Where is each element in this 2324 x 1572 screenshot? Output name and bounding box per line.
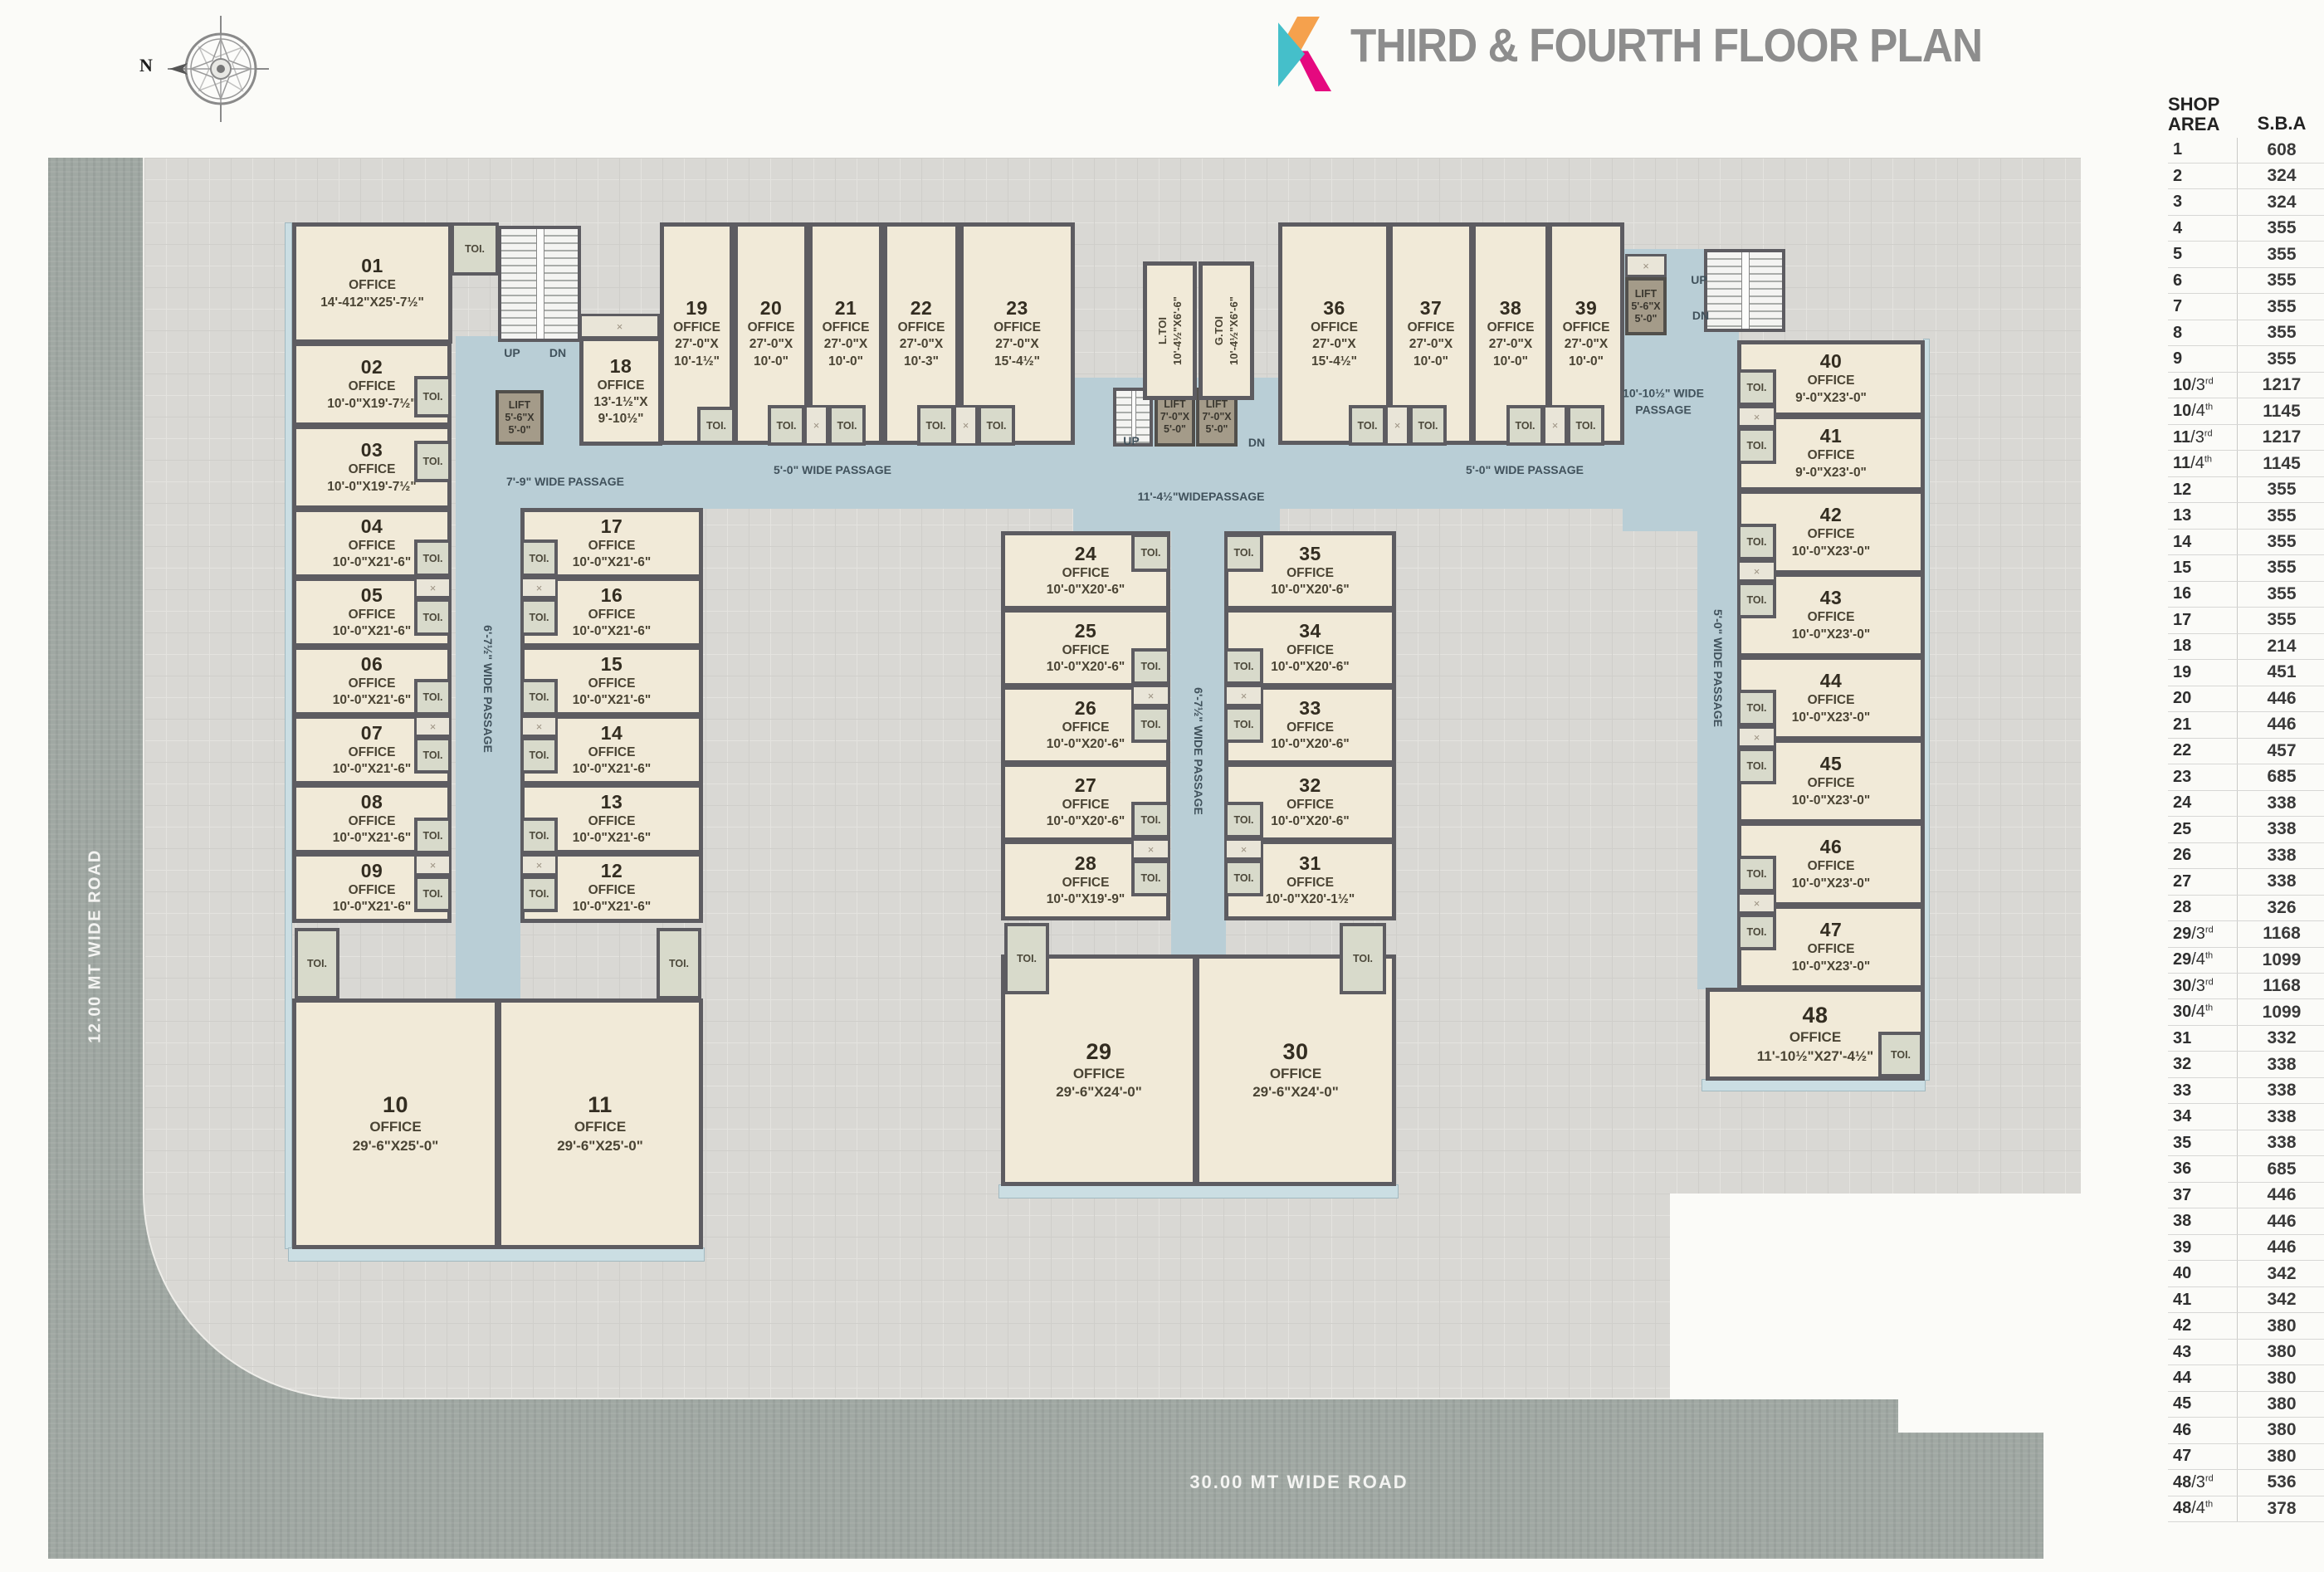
plinth-edge (1701, 1079, 1926, 1091)
toilet-room: TOI. (1131, 706, 1170, 743)
duct-shaft: × (1131, 838, 1170, 860)
table-row: 11/4th1145 (2168, 451, 2324, 476)
toilet-room: TOI. (414, 876, 452, 912)
dn-label: DN (1248, 436, 1265, 449)
toilet-room: TOI. (520, 737, 558, 774)
toilet-room: TOI. (1737, 748, 1776, 784)
table-header-sba: S.B.A (2238, 113, 2324, 134)
toilet-room: TOI. (1224, 648, 1263, 685)
table-row: 3324 (2168, 189, 2324, 215)
passage (1171, 917, 1226, 956)
toilet-room: TOI. (1737, 856, 1776, 892)
duct-shaft: × (954, 405, 978, 446)
toilet-room: TOI. (1409, 405, 1447, 446)
duct-shaft: × (1543, 405, 1567, 446)
table-row: 47380 (2168, 1444, 2324, 1470)
toilet-room: TOI. (1737, 582, 1776, 618)
passage (1278, 444, 1627, 509)
toilet-room: TOI. (1131, 648, 1170, 685)
north-label: N (139, 55, 153, 76)
toilet-room: TOI. (1004, 923, 1049, 994)
duct-shaft: × (520, 715, 558, 737)
table-row: 42380 (2168, 1313, 2324, 1339)
table-header-area: SHOP AREA (2168, 95, 2238, 134)
table-row: 13355 (2168, 503, 2324, 529)
duct-shaft: × (1625, 254, 1667, 277)
toilet-room: TOI. (1224, 860, 1263, 896)
table-row: 8355 (2168, 320, 2324, 346)
table-row: 34338 (2168, 1104, 2324, 1130)
toilet-room: TOI. (1737, 690, 1776, 726)
table-row: 9355 (2168, 346, 2324, 372)
toilet-room: TOI. (1131, 802, 1170, 838)
toilet-room: TOI. (828, 405, 866, 446)
toilet-room: L.TOI10'-4½"X6'-6" (1143, 261, 1197, 400)
page-title: THIRD & FOURTH FLOOR PLAN (1350, 18, 1982, 73)
toilet-room: TOI. (657, 928, 701, 999)
table-row: 30/4th1099 (2168, 999, 2324, 1025)
toilet-room: TOI. (1224, 534, 1263, 572)
duct-shaft: × (414, 577, 452, 598)
toilet-room: TOI. (1737, 427, 1776, 464)
table-row: 7355 (2168, 294, 2324, 320)
shop-area-table: SHOP AREA S.B.A 160823243324435553556355… (2168, 95, 2324, 1522)
passage-label: 5'-0" WIDE PASSAGE (774, 463, 891, 476)
table-row: 5355 (2168, 242, 2324, 267)
duct-shaft: × (520, 854, 558, 876)
toilet-room: TOI. (1737, 524, 1776, 560)
duct-shaft: × (1224, 838, 1263, 860)
shop-table-rows: 16082324332443555355635573558355935510/3… (2168, 138, 2324, 1523)
toilet-room: TOI. (917, 405, 954, 446)
table-row: 6355 (2168, 268, 2324, 294)
toilet-room: TOI. (1224, 706, 1263, 743)
up-label: UP (1691, 273, 1706, 286)
toilet-room: TOI. (1878, 1032, 1923, 1077)
lift-room: LIFT5'-6"X5'-0" (1625, 277, 1667, 335)
toilet-room: TOI. (520, 818, 558, 854)
table-row: 10/3rd1217 (2168, 373, 2324, 398)
header-area: AREA (2168, 115, 2238, 134)
toilet-room: G.TOI10'-4½"X6'-6" (1199, 261, 1254, 400)
duct-shaft: × (1385, 405, 1409, 446)
table-row: 35338 (2168, 1130, 2324, 1156)
table-row: 27338 (2168, 869, 2324, 895)
toilet-room: TOI. (697, 407, 735, 444)
table-row: 18214 (2168, 634, 2324, 660)
plan-layer: 01OFFICE14'-412"X25'-7½"02OFFICE10'-0"X1… (0, 0, 2324, 1572)
duct-shaft: × (1131, 685, 1170, 706)
toilet-room: TOI. (520, 598, 558, 636)
table-row: 39446 (2168, 1235, 2324, 1261)
toilet-room: TOI. (1131, 860, 1170, 896)
duct-shaft: × (520, 577, 558, 598)
up-label: UP (504, 346, 520, 359)
header-shop: SHOP (2168, 95, 2238, 115)
passage-label: 11'-4½"WIDEPASSAGE (1138, 490, 1265, 503)
table-row: 44380 (2168, 1365, 2324, 1391)
table-row: 1608 (2168, 138, 2324, 164)
compass-icon (159, 12, 271, 124)
brand-logo (1278, 17, 1331, 91)
office-room: 10OFFICE29'-6"X25'-0" (292, 998, 499, 1249)
duct-shaft: × (579, 314, 660, 339)
table-row: 21446 (2168, 712, 2324, 738)
table-row: 22457 (2168, 739, 2324, 764)
table-row: 36685 (2168, 1156, 2324, 1182)
toilet-room: TOI. (1506, 405, 1544, 446)
duct-shaft: × (1737, 726, 1776, 748)
toilet-room: TOI. (978, 405, 1015, 446)
toilet-room: TOI. (1349, 405, 1386, 446)
table-row: 20446 (2168, 686, 2324, 712)
floor-plan-canvas: 12.00 MT WIDE ROAD 30.00 MT WIDE ROAD 01… (0, 0, 2324, 1572)
office-room: 11OFFICE29'-6"X25'-0" (497, 998, 703, 1249)
toilet-room: TOI. (1340, 923, 1386, 994)
plinth-edge (285, 222, 292, 1249)
toilet-room: TOI. (520, 539, 558, 577)
table-row: 31332 (2168, 1026, 2324, 1052)
table-row: 28326 (2168, 896, 2324, 921)
lift-room: LIFT5'-6"X5'-0" (496, 390, 544, 445)
table-row: 10/4th1145 (2168, 398, 2324, 424)
passage-label: 5'-0" WIDE PASSAGE (1711, 609, 1725, 727)
table-row: 30/3rd1168 (2168, 974, 2324, 999)
table-row: 37446 (2168, 1183, 2324, 1208)
duct-shaft: × (414, 715, 452, 737)
table-row: 45380 (2168, 1392, 2324, 1418)
office-room: 18OFFICE13'-1½"X9'-10½" (579, 337, 662, 446)
table-row: 43380 (2168, 1340, 2324, 1365)
toilet-room: TOI. (520, 876, 558, 912)
table-row: 16355 (2168, 582, 2324, 608)
duct-shaft: × (1737, 892, 1776, 914)
staircase (1704, 249, 1785, 332)
passage-label: 6'-7½" WIDE PASSAGE (1192, 687, 1205, 815)
toilet-room: TOI. (1737, 914, 1776, 950)
table-row: 48/3rd536 (2168, 1470, 2324, 1496)
toilet-room: TOI. (414, 376, 452, 417)
toilet-room: TOI. (295, 928, 339, 999)
table-row: 32338 (2168, 1052, 2324, 1077)
table-header: SHOP AREA S.B.A (2168, 95, 2324, 138)
table-row: 15355 (2168, 555, 2324, 581)
table-row: 25338 (2168, 817, 2324, 842)
table-row: 26338 (2168, 843, 2324, 869)
toilet-room: TOI. (520, 679, 558, 715)
table-row: 48/4th378 (2168, 1496, 2324, 1522)
toilet-room: TOI. (414, 737, 452, 774)
duct-shaft: × (1737, 560, 1776, 582)
table-row: 19451 (2168, 660, 2324, 686)
table-row: 33338 (2168, 1078, 2324, 1104)
toilet-room: TOI. (451, 222, 499, 276)
toilet-room: TOI. (1131, 534, 1170, 572)
duct-shaft: × (414, 854, 452, 876)
table-row: 2324 (2168, 164, 2324, 189)
table-row: 24338 (2168, 791, 2324, 817)
toilet-room: TOI. (1737, 369, 1776, 406)
staircase (498, 226, 581, 342)
passage-label: 6'-7½" WIDE PASSAGE (481, 625, 495, 753)
plinth-edge (998, 1184, 1399, 1199)
table-row: 41342 (2168, 1287, 2324, 1313)
table-row: 12355 (2168, 477, 2324, 503)
table-row: 23685 (2168, 764, 2324, 790)
table-row: 11/3rd1217 (2168, 425, 2324, 451)
table-row: 4355 (2168, 216, 2324, 242)
dn-label: DN (1692, 309, 1709, 322)
table-row: 38446 (2168, 1208, 2324, 1234)
passage (456, 920, 520, 1000)
up-label: UP (1123, 434, 1139, 447)
toilet-room: TOI. (414, 679, 452, 715)
table-row: 29/4th1099 (2168, 948, 2324, 974)
office-room: 01OFFICE14'-412"X25'-7½" (292, 222, 452, 344)
toilet-room: TOI. (768, 405, 805, 446)
table-row: 29/3rd1168 (2168, 921, 2324, 947)
duct-shaft: × (1737, 406, 1776, 427)
toilet-room: TOI. (414, 441, 452, 482)
toilet-room: TOI. (414, 818, 452, 854)
table-row: 14355 (2168, 530, 2324, 555)
toilet-room: TOI. (414, 539, 452, 577)
table-row: 40342 (2168, 1261, 2324, 1286)
passage-label: 10'-10½" WIDEPASSAGE (1623, 385, 1704, 417)
toilet-room: TOI. (414, 598, 452, 636)
toilet-room: TOI. (1567, 405, 1604, 446)
duct-shaft: × (1224, 685, 1263, 706)
toilet-room: TOI. (1224, 802, 1263, 838)
passage-label: 5'-0" WIDE PASSAGE (1466, 463, 1584, 476)
passage-label: 7'-9" WIDE PASSAGE (506, 475, 624, 488)
dn-label: DN (549, 346, 566, 359)
plinth-edge (288, 1247, 705, 1262)
table-row: 17355 (2168, 608, 2324, 633)
duct-shaft: × (804, 405, 828, 446)
table-row: 46380 (2168, 1418, 2324, 1443)
